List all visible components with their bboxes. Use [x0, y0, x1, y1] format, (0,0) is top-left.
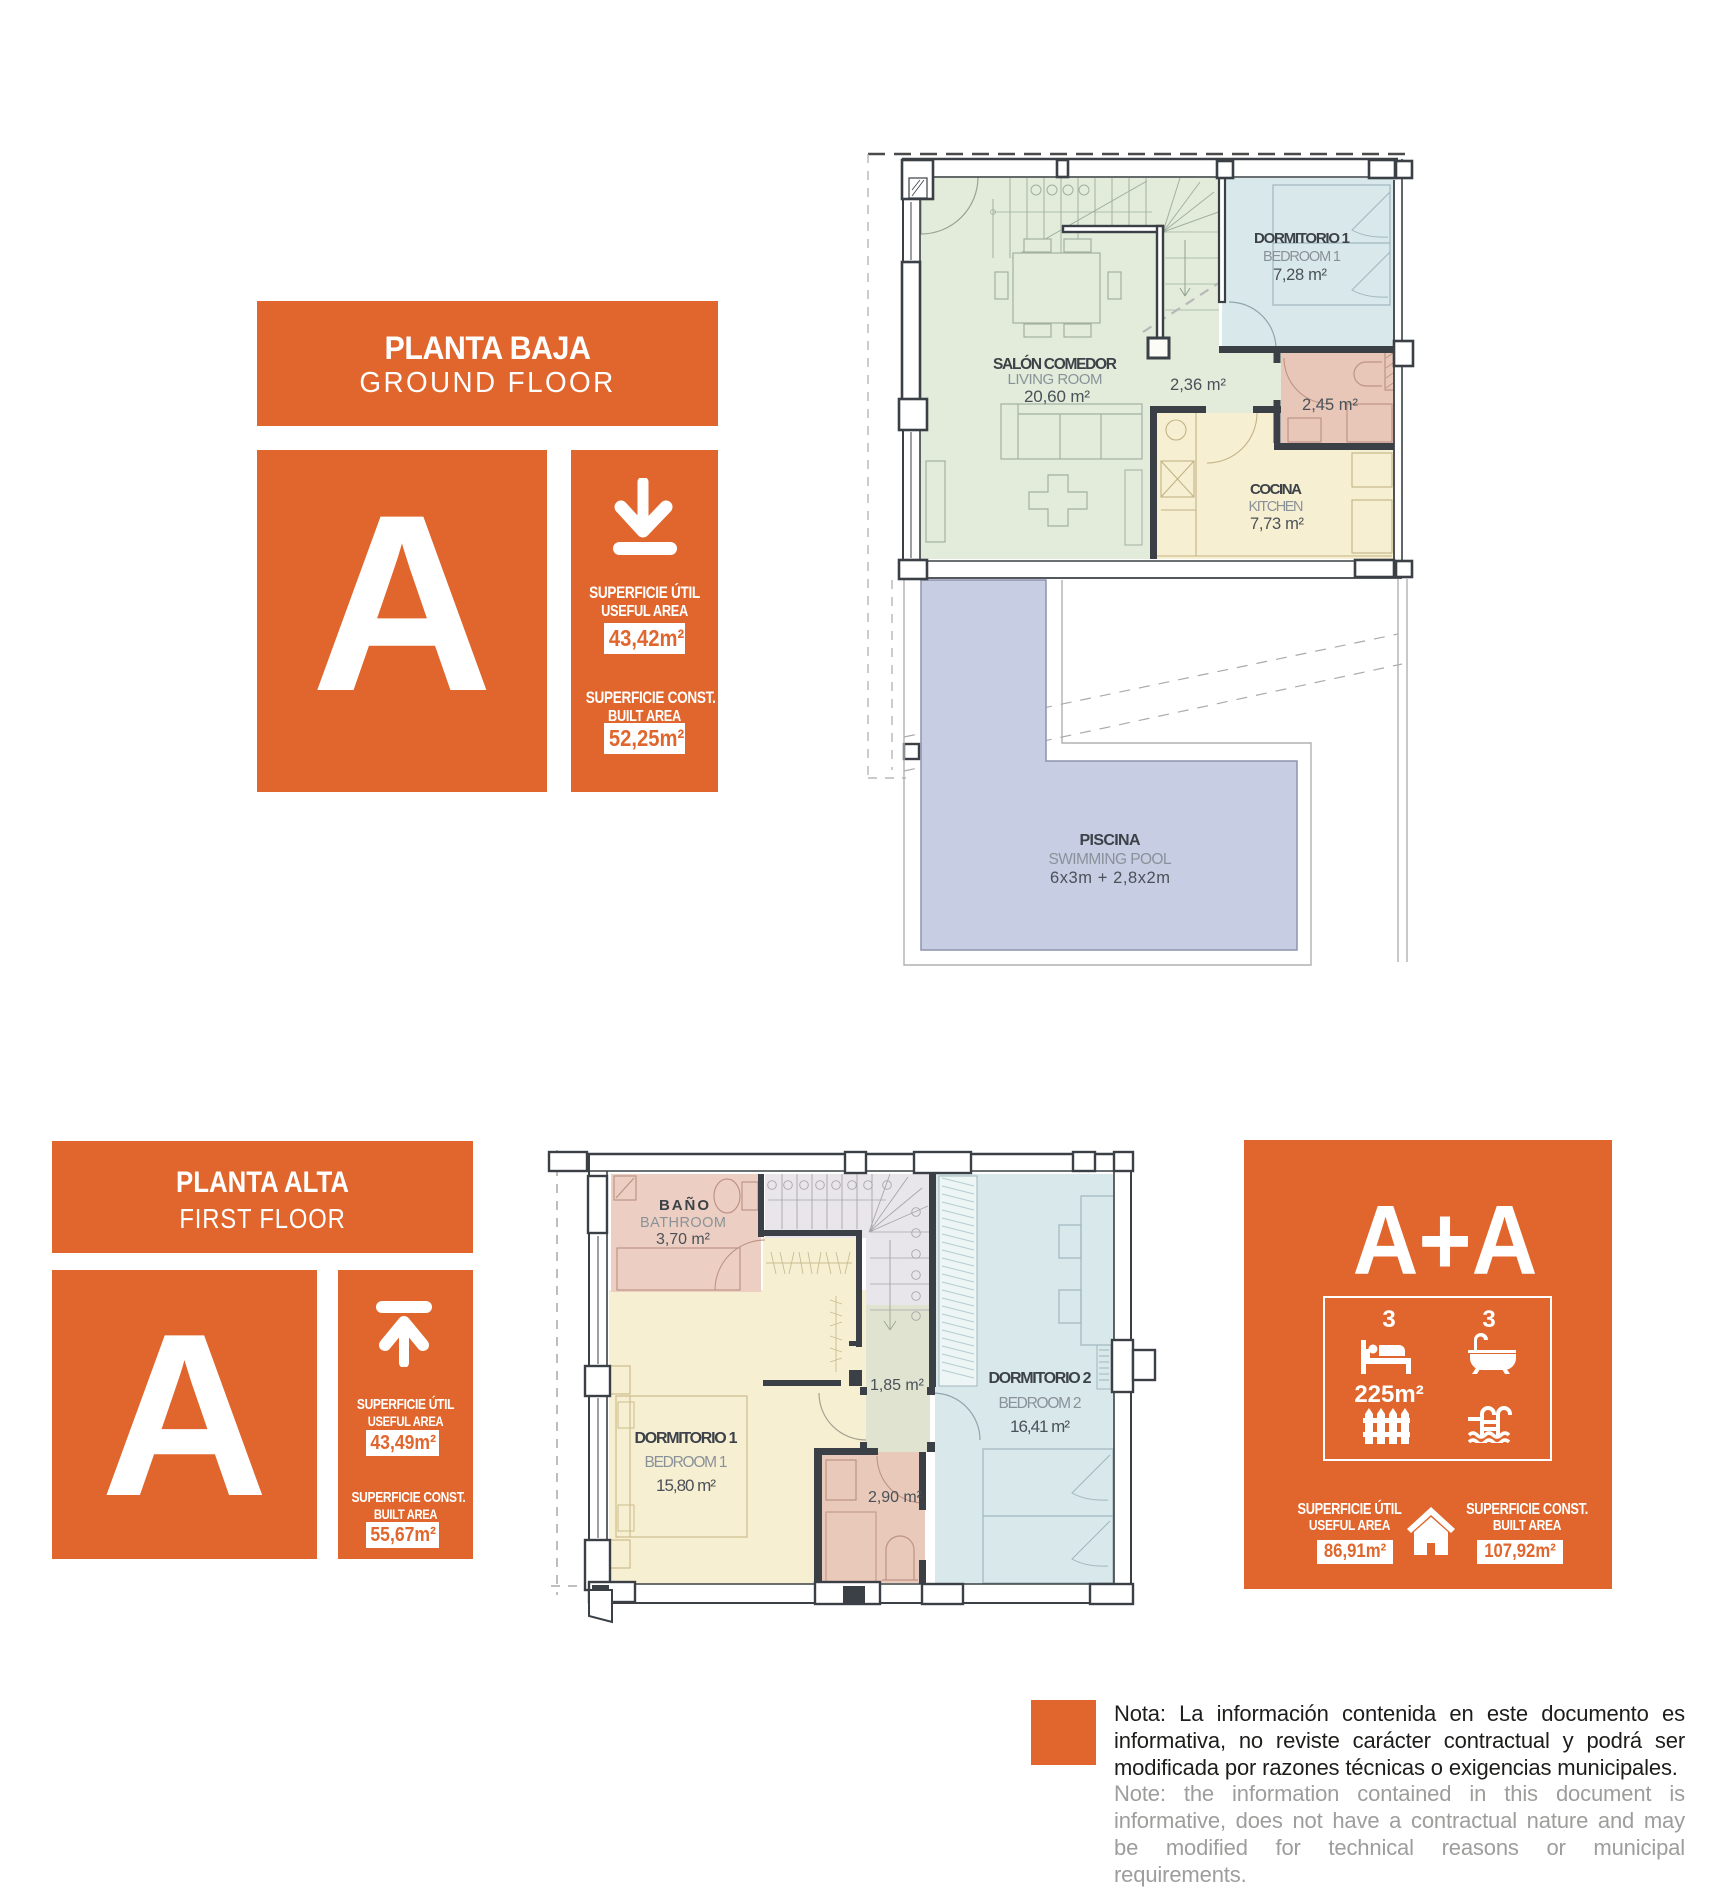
svg-text:SWIMMING POOL: SWIMMING POOL — [1049, 851, 1172, 868]
svg-text:DORMITORIO 1: DORMITORIO 1 — [635, 1430, 738, 1447]
svg-text:KITCHEN: KITCHEN — [1249, 499, 1304, 515]
svg-text:7,73 m²: 7,73 m² — [1250, 515, 1305, 533]
svg-text:16,41 m²: 16,41 m² — [1010, 1417, 1070, 1436]
svg-text:PISCINA: PISCINA — [1080, 832, 1141, 849]
svg-text:LIVING ROOM: LIVING ROOM — [1008, 371, 1103, 388]
svg-text:2,36 m²: 2,36 m² — [1170, 376, 1227, 394]
svg-text:DORMITORIO 1: DORMITORIO 1 — [1254, 230, 1350, 247]
svg-text:15,80 m²: 15,80 m² — [656, 1476, 716, 1495]
svg-text:2,45 m²: 2,45 m² — [1302, 396, 1359, 414]
svg-text:2,90 m²: 2,90 m² — [868, 1489, 923, 1506]
svg-text:COCINA: COCINA — [1250, 481, 1302, 498]
svg-text:20,60 m²: 20,60 m² — [1024, 387, 1090, 406]
svg-text:BATHROOM: BATHROOM — [640, 1215, 726, 1231]
svg-text:6x3m + 2,8x2m: 6x3m + 2,8x2m — [1050, 869, 1170, 887]
svg-text:BEDROOM 1: BEDROOM 1 — [1263, 249, 1341, 265]
svg-text:DORMITORIO 2: DORMITORIO 2 — [989, 1370, 1092, 1387]
svg-text:BEDROOM 1: BEDROOM 1 — [645, 1454, 728, 1471]
svg-text:7,28 m²: 7,28 m² — [1273, 266, 1328, 284]
svg-text:BAÑO: BAÑO — [659, 1196, 709, 1214]
svg-text:3,70 m²: 3,70 m² — [656, 1231, 711, 1248]
svg-text:BEDROOM 2: BEDROOM 2 — [999, 1395, 1082, 1412]
svg-text:1,85 m²: 1,85 m² — [870, 1377, 925, 1394]
